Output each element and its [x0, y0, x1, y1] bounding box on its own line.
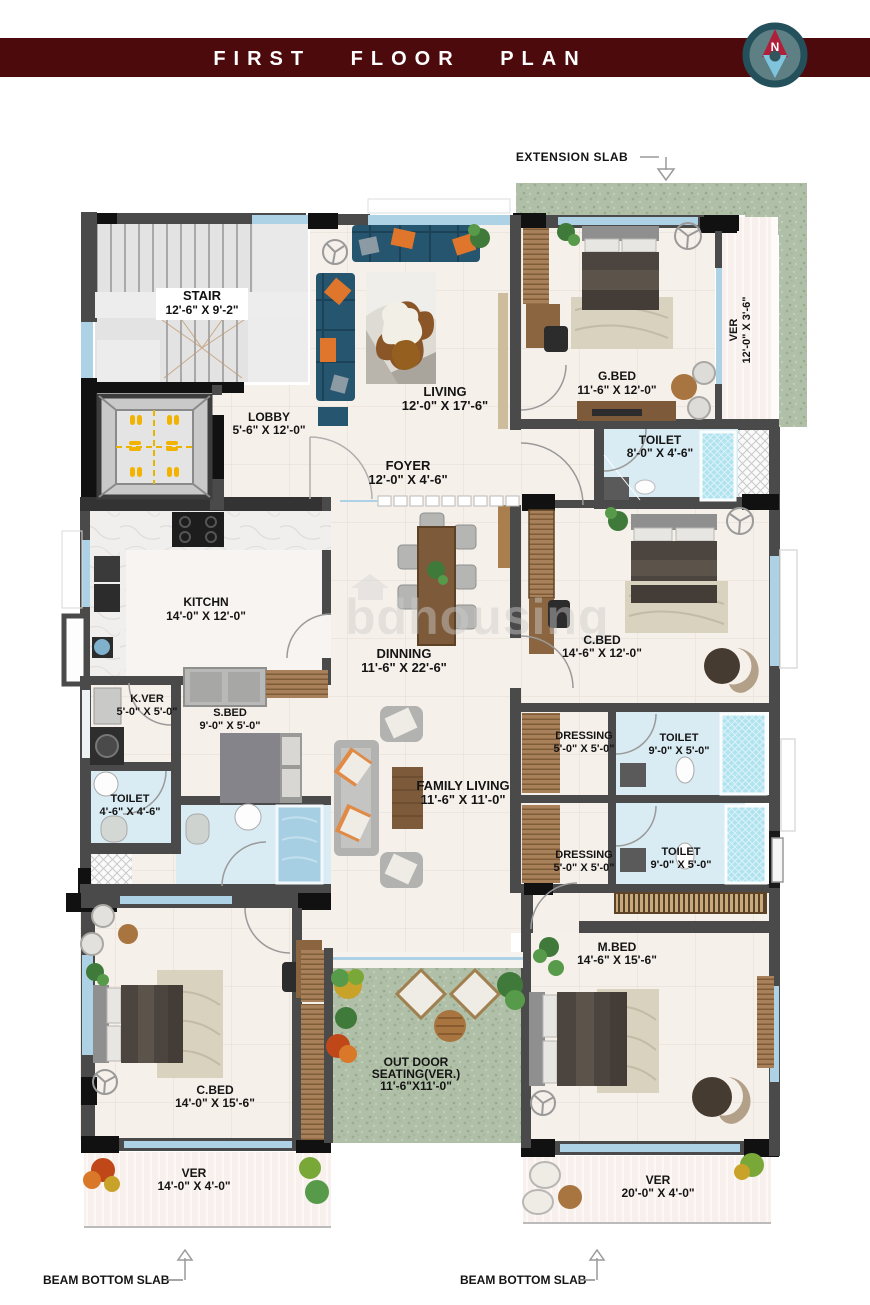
svg-text:12'-0" X 17'-6": 12'-0" X 17'-6"	[402, 398, 488, 413]
svg-text:11'-6"X11'-0": 11'-6"X11'-0"	[380, 1079, 452, 1093]
svg-text:11'-6" X 11'-0": 11'-6" X 11'-0"	[420, 792, 505, 807]
svg-text:BEAM BOTTOM SLAB: BEAM BOTTOM SLAB	[460, 1273, 587, 1287]
svg-text:DRESSING: DRESSING	[555, 730, 612, 742]
svg-text:9'-0" X 5'-0": 9'-0" X 5'-0"	[200, 720, 261, 732]
svg-text:LIVING: LIVING	[423, 384, 466, 399]
svg-text:bdhousing: bdhousing	[345, 589, 610, 645]
svg-text:12'-0" X 4'-6": 12'-0" X 4'-6"	[368, 472, 447, 487]
svg-text:DRESSING: DRESSING	[555, 849, 612, 861]
svg-text:KITCHN: KITCHN	[183, 595, 228, 609]
svg-text:FOYER: FOYER	[386, 458, 431, 473]
svg-text:9'-0" X 5'-0": 9'-0" X 5'-0"	[651, 859, 712, 871]
svg-text:14'-0" X 4'-0": 14'-0" X 4'-0"	[157, 1179, 230, 1193]
svg-text:11'-6" X 12'-0": 11'-6" X 12'-0"	[577, 383, 656, 397]
svg-text:14'-0" X 12'-0": 14'-0" X 12'-0"	[166, 609, 246, 623]
svg-text:14'-6" X 15'-6": 14'-6" X 15'-6"	[577, 953, 657, 967]
svg-text:G.BED: G.BED	[598, 369, 636, 383]
svg-text:TOILET: TOILET	[639, 433, 682, 447]
svg-text:C.BED: C.BED	[196, 1083, 234, 1097]
svg-text:FIRST FLOOR PLAN: FIRST FLOOR PLAN	[213, 48, 586, 70]
svg-text:TOILET: TOILET	[660, 732, 699, 744]
svg-text:9'-0" X 5'-0": 9'-0" X 5'-0"	[649, 745, 710, 757]
svg-text:20'-0" X 4'-0": 20'-0" X 4'-0"	[621, 1186, 694, 1200]
svg-text:5'-0" X 5'-0": 5'-0" X 5'-0"	[554, 862, 615, 874]
svg-text:STAIR: STAIR	[183, 288, 222, 303]
svg-text:14'-0" X 15'-6": 14'-0" X 15'-6"	[175, 1096, 255, 1110]
svg-text:TOILET: TOILET	[662, 846, 701, 858]
svg-text:14'-6" X 12'-0": 14'-6" X 12'-0"	[562, 646, 642, 660]
svg-text:K.VER: K.VER	[130, 693, 164, 705]
svg-text:5'-0" X 5'-0": 5'-0" X 5'-0"	[117, 706, 178, 718]
svg-text:12'-6" X 9'-2": 12'-6" X 9'-2"	[165, 303, 238, 317]
svg-text:M.BED: M.BED	[598, 940, 637, 954]
svg-text:N: N	[771, 40, 780, 54]
svg-text:EXTENSION SLAB: EXTENSION SLAB	[516, 150, 628, 164]
svg-text:DINNING: DINNING	[377, 646, 432, 661]
svg-text:4'-6" X 4'-6": 4'-6" X 4'-6"	[100, 806, 161, 818]
svg-text:VER: VER	[182, 1166, 207, 1180]
svg-text:TOILET: TOILET	[111, 793, 150, 805]
svg-text:BEAM BOTTOM SLAB: BEAM BOTTOM SLAB	[43, 1273, 170, 1287]
svg-text:LOBBY: LOBBY	[248, 410, 290, 424]
svg-text:5'-6" X 12'-0": 5'-6" X 12'-0"	[232, 423, 305, 437]
svg-text:8'-0" X 4'-6": 8'-0" X 4'-6"	[627, 446, 693, 460]
svg-text:VER: VER	[728, 319, 740, 342]
svg-text:C.BED: C.BED	[583, 633, 621, 647]
svg-text:12'-0" X 3'-6": 12'-0" X 3'-6"	[741, 296, 753, 363]
svg-text:FAMILY LIVING: FAMILY LIVING	[416, 778, 509, 793]
svg-text:S.BED: S.BED	[213, 707, 247, 719]
svg-text:VER: VER	[646, 1173, 671, 1187]
svg-text:11'-6" X 22'-6": 11'-6" X 22'-6"	[361, 660, 447, 675]
svg-text:5'-0" X 5'-0": 5'-0" X 5'-0"	[554, 743, 615, 755]
